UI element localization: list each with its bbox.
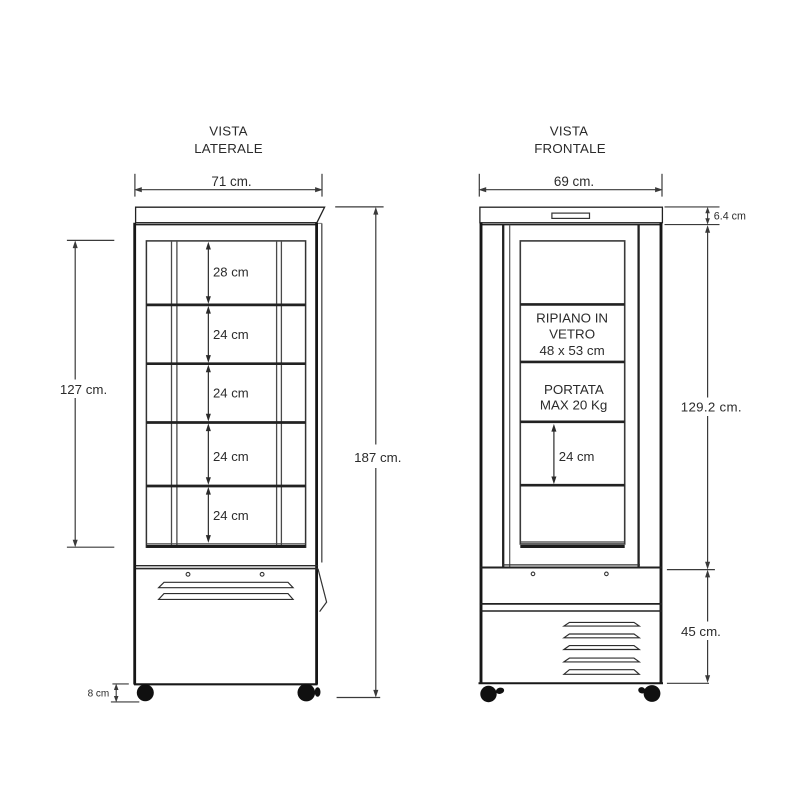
svg-text:LATERALE: LATERALE: [194, 141, 263, 156]
svg-text:129.2 cm.: 129.2 cm.: [681, 400, 742, 415]
svg-text:24 cm: 24 cm: [213, 508, 249, 523]
svg-text:VISTA: VISTA: [209, 124, 247, 139]
svg-text:24 cm: 24 cm: [213, 386, 249, 401]
svg-text:VETRO: VETRO: [549, 326, 595, 341]
svg-text:PORTATA: PORTATA: [544, 382, 604, 397]
svg-text:71 cm.: 71 cm.: [211, 174, 251, 189]
svg-text:6.4 cm: 6.4 cm: [714, 211, 746, 223]
svg-text:187 cm.: 187 cm.: [354, 450, 401, 465]
svg-text:RIPIANO IN: RIPIANO IN: [536, 311, 608, 326]
svg-text:FRONTALE: FRONTALE: [534, 141, 606, 156]
svg-text:24 cm: 24 cm: [213, 327, 249, 342]
svg-text:28 cm: 28 cm: [213, 265, 249, 280]
svg-text:24 cm: 24 cm: [213, 449, 249, 464]
svg-text:24 cm: 24 cm: [559, 449, 595, 464]
svg-text:45 cm.: 45 cm.: [681, 624, 721, 639]
svg-text:VISTA: VISTA: [550, 124, 588, 139]
svg-text:8 cm: 8 cm: [88, 689, 110, 700]
svg-text:69 cm.: 69 cm.: [554, 174, 594, 189]
svg-text:48 x 53 cm: 48 x 53 cm: [539, 343, 604, 358]
svg-text:127 cm.: 127 cm.: [60, 382, 107, 397]
svg-text:MAX 20 Kg: MAX 20 Kg: [540, 398, 608, 413]
